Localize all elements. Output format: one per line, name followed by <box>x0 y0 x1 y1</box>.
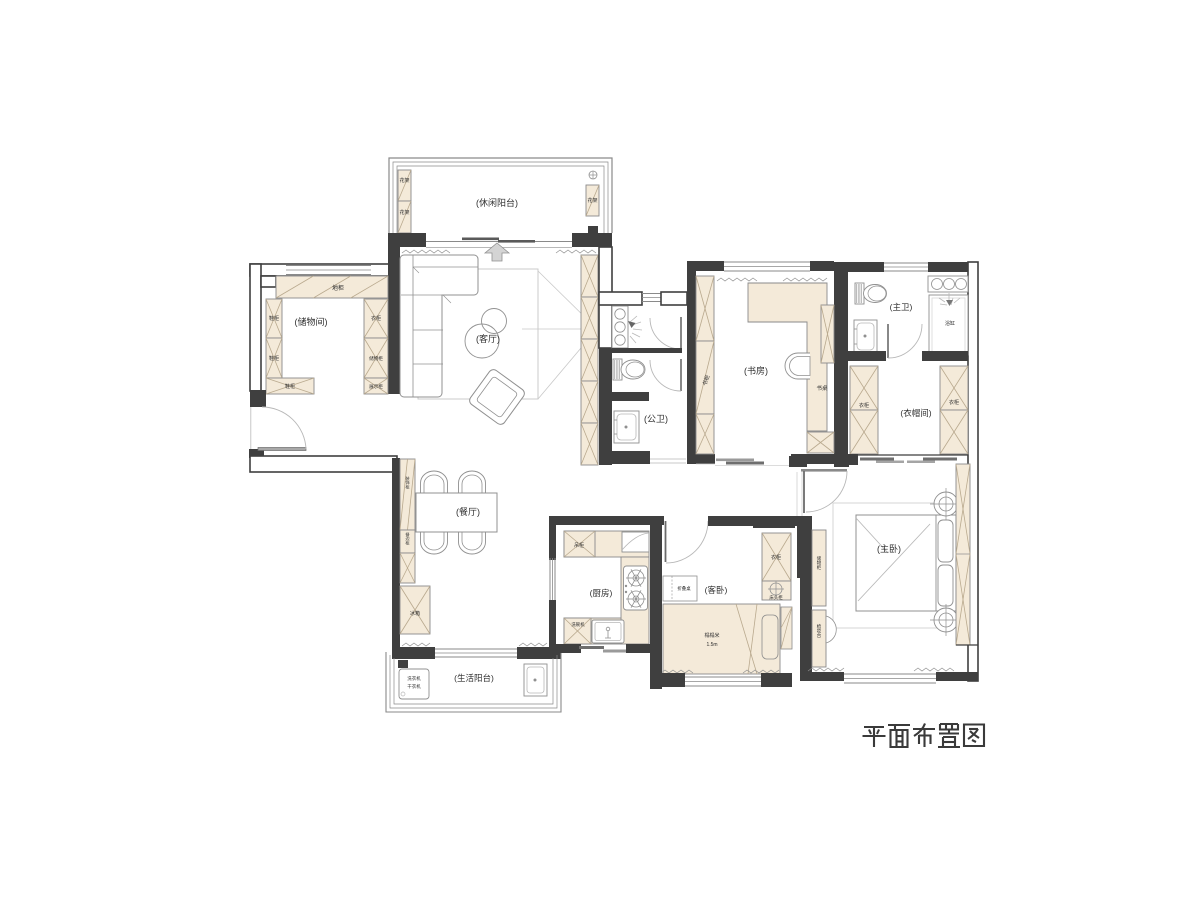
svg-text:折叠桌: 折叠桌 <box>677 585 691 592</box>
svg-text:鞋柜: 鞋柜 <box>269 315 279 322</box>
svg-text:衣柜: 衣柜 <box>949 399 959 406</box>
svg-text:洗碗机: 洗碗机 <box>571 621 585 628</box>
svg-text:浴缸: 浴缸 <box>945 320 955 327</box>
svg-text:(储物间): (储物间) <box>295 316 328 327</box>
svg-text:冰箱: 冰箱 <box>410 610 420 617</box>
svg-text:衣柜: 衣柜 <box>859 402 869 409</box>
svg-text:花架: 花架 <box>399 177 409 184</box>
svg-text:花架: 花架 <box>399 209 409 216</box>
svg-text:吊柜: 吊柜 <box>574 542 584 549</box>
svg-text:榻榻米: 榻榻米 <box>704 632 719 639</box>
svg-text:地柜: 地柜 <box>332 284 344 292</box>
svg-text:储物柜: 储物柜 <box>369 355 383 362</box>
svg-text:(衣帽间): (衣帽间) <box>900 408 931 418</box>
svg-text:鞋柜: 鞋柜 <box>269 355 279 362</box>
svg-text:床头柜: 床头柜 <box>769 594 783 601</box>
svg-text:书桌: 书桌 <box>816 384 828 392</box>
svg-text:花架: 花架 <box>587 197 597 204</box>
svg-text:1.5m: 1.5m <box>706 642 717 648</box>
svg-text:(生活阳台): (生活阳台) <box>454 673 494 683</box>
svg-text:(休闲阳台): (休闲阳台) <box>476 197 518 208</box>
svg-text:干衣机: 干衣机 <box>407 683 421 690</box>
svg-text:(书房): (书房) <box>744 365 768 376</box>
svg-text:洗衣机: 洗衣机 <box>407 675 421 682</box>
svg-text:衣柜: 衣柜 <box>771 554 781 561</box>
svg-text:衣柜: 衣柜 <box>371 315 381 322</box>
svg-text:(客卧): (客卧) <box>705 585 728 595</box>
svg-text:鞋柜: 鞋柜 <box>285 383 295 390</box>
svg-text:展示柜: 展示柜 <box>369 383 383 390</box>
svg-text:(厨房): (厨房) <box>590 588 613 598</box>
svg-text:(主卫): (主卫) <box>890 302 913 312</box>
svg-text:(餐厅): (餐厅) <box>456 506 480 517</box>
svg-text:(公卫): (公卫) <box>644 414 668 424</box>
svg-text:(主卧): (主卧) <box>877 543 901 554</box>
svg-text:(客厅): (客厅) <box>476 333 500 344</box>
svg-text:储物柜: 储物柜 <box>817 555 822 571</box>
svg-text:梳妆台: 梳妆台 <box>817 623 822 639</box>
